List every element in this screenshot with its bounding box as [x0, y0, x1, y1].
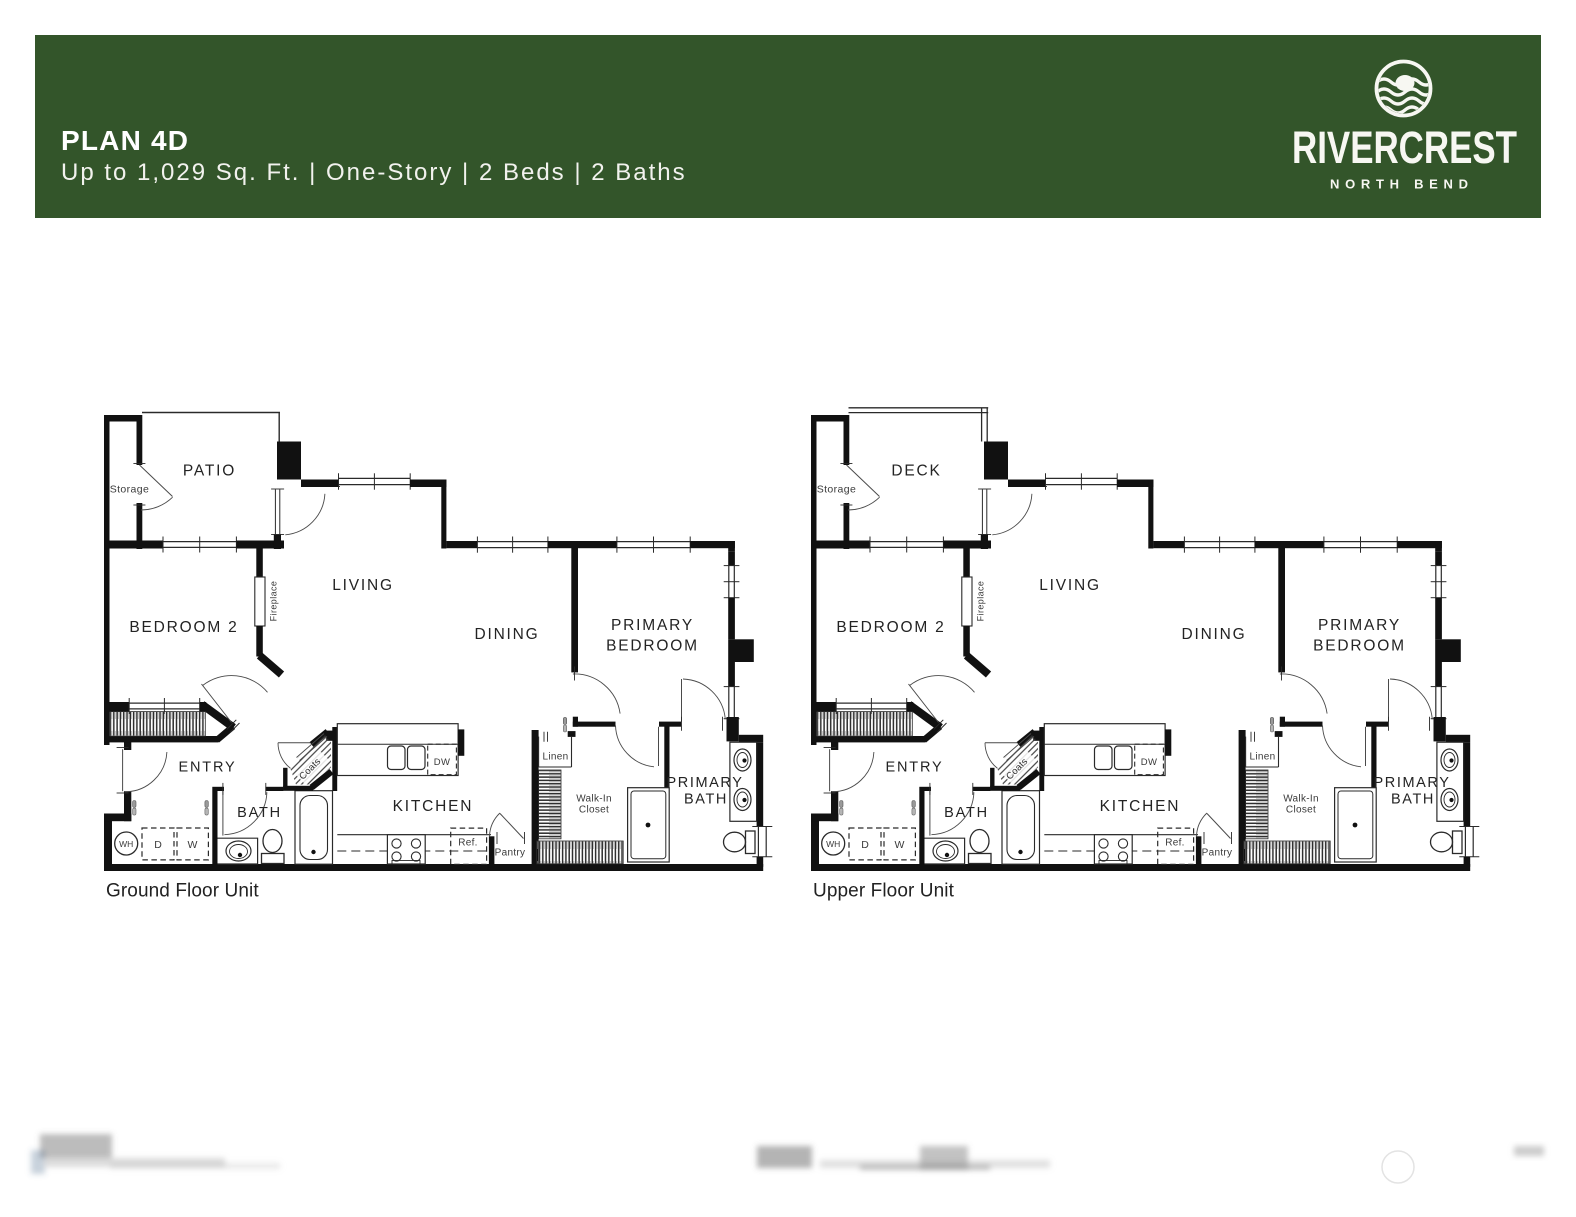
svg-text:BATH: BATH	[237, 805, 282, 821]
svg-text:WH: WH	[119, 839, 133, 849]
svg-text:BEDROOM: BEDROOM	[606, 638, 699, 655]
svg-text:Closet: Closet	[579, 805, 609, 816]
svg-text:Pantry: Pantry	[1202, 848, 1233, 859]
svg-text:PRIMARY: PRIMARY	[666, 775, 743, 791]
svg-text:Ref.: Ref.	[1165, 838, 1185, 849]
svg-text:Closet: Closet	[1286, 805, 1316, 816]
svg-text:RIVERCREST: RIVERCREST	[1292, 122, 1517, 173]
svg-text:PRIMARY: PRIMARY	[1373, 775, 1450, 791]
svg-text:Pantry: Pantry	[495, 848, 526, 859]
svg-text:ENTRY: ENTRY	[886, 760, 944, 776]
svg-text:W: W	[895, 839, 905, 851]
svg-text:Walk-In: Walk-In	[1283, 794, 1319, 805]
svg-text:D: D	[861, 839, 869, 851]
svg-text:KITCHEN: KITCHEN	[1100, 798, 1181, 815]
svg-text:BATH: BATH	[944, 805, 989, 821]
svg-text:Fireplace: Fireplace	[976, 581, 986, 622]
svg-text:D: D	[154, 839, 162, 851]
svg-text:DINING: DINING	[1181, 626, 1246, 643]
svg-text:Ground Floor Unit: Ground Floor Unit	[106, 881, 259, 902]
svg-text:Linen: Linen	[543, 752, 569, 763]
svg-text:DW: DW	[1141, 757, 1157, 768]
svg-text:BEDROOM 2: BEDROOM 2	[836, 619, 945, 636]
svg-text:LIVING: LIVING	[1039, 577, 1101, 594]
svg-text:PRIMARY: PRIMARY	[1318, 617, 1401, 634]
svg-text:PRIMARY: PRIMARY	[611, 617, 694, 634]
svg-text:Ref.: Ref.	[458, 838, 478, 849]
svg-text:KITCHEN: KITCHEN	[393, 798, 474, 815]
svg-text:Storage: Storage	[110, 484, 150, 496]
svg-text:NORTH BEND: NORTH BEND	[1330, 177, 1468, 192]
svg-text:Storage: Storage	[817, 484, 857, 496]
svg-text:DINING: DINING	[474, 626, 539, 643]
svg-text:Upper Floor Unit: Upper Floor Unit	[813, 881, 955, 902]
svg-text:PLAN 4D: PLAN 4D	[61, 125, 189, 156]
svg-text:Walk-In: Walk-In	[576, 794, 612, 805]
svg-text:BATH: BATH	[1391, 792, 1435, 808]
svg-text:Up to 1,029 Sq. Ft. | One-Stor: Up to 1,029 Sq. Ft. | One-Story | 2 Beds…	[61, 159, 687, 186]
svg-text:DW: DW	[434, 757, 450, 768]
svg-text:BEDROOM 2: BEDROOM 2	[129, 619, 238, 636]
svg-text:ENTRY: ENTRY	[179, 760, 237, 776]
svg-text:LIVING: LIVING	[332, 577, 394, 594]
svg-text:W: W	[188, 839, 198, 851]
svg-text:Linen: Linen	[1250, 752, 1276, 763]
svg-text:BEDROOM: BEDROOM	[1313, 638, 1406, 655]
svg-text:WH: WH	[826, 839, 840, 849]
svg-text:BATH: BATH	[684, 792, 728, 808]
svg-text:DECK: DECK	[891, 463, 941, 480]
svg-text:Fireplace: Fireplace	[269, 581, 279, 622]
svg-text:PATIO: PATIO	[183, 463, 236, 480]
